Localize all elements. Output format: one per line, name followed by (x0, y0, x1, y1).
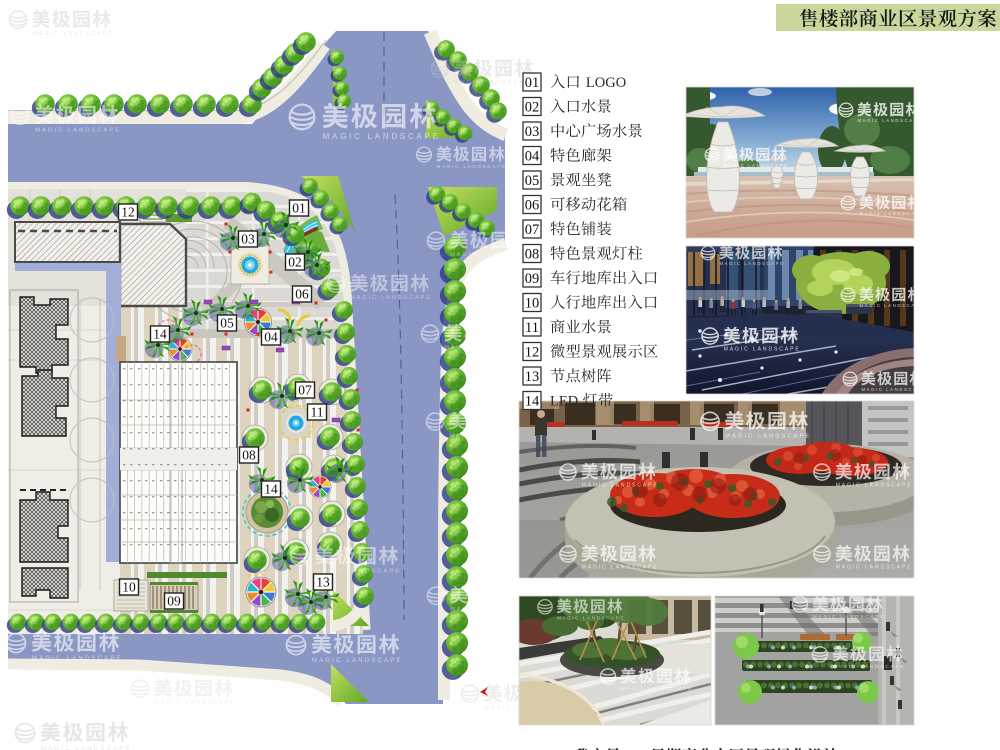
svg-text:10: 10 (122, 580, 136, 595)
svg-text:04: 04 (264, 330, 278, 345)
svg-text:05: 05 (525, 173, 540, 189)
svg-text:03: 03 (241, 232, 255, 247)
svg-text:13: 13 (316, 575, 330, 590)
svg-text:02: 02 (525, 100, 540, 116)
svg-text:12: 12 (121, 205, 135, 220)
svg-text:14: 14 (153, 327, 167, 342)
svg-text:04: 04 (525, 149, 540, 165)
svg-text:12: 12 (525, 345, 540, 361)
svg-text:11: 11 (311, 405, 324, 420)
svg-text:07: 07 (525, 222, 540, 238)
svg-text:09: 09 (525, 271, 540, 287)
svg-text:09: 09 (167, 594, 181, 609)
svg-text:10: 10 (525, 296, 540, 312)
svg-text:08: 08 (525, 247, 540, 263)
svg-text:14: 14 (264, 482, 278, 497)
svg-text:01: 01 (525, 75, 540, 91)
svg-text:06: 06 (525, 198, 540, 214)
svg-text:13: 13 (525, 369, 540, 385)
svg-text:11: 11 (525, 320, 539, 336)
svg-text:05: 05 (220, 316, 234, 331)
svg-text:08: 08 (242, 448, 256, 463)
svg-text:02: 02 (288, 255, 302, 270)
svg-text:03: 03 (525, 124, 540, 140)
svg-text:LOGO: LOGO (586, 75, 626, 91)
svg-text:06: 06 (295, 287, 309, 302)
svg-text:14: 14 (525, 394, 540, 410)
svg-text:01: 01 (292, 201, 306, 216)
svg-text:07: 07 (298, 383, 312, 398)
svg-text:LED: LED (550, 394, 578, 410)
